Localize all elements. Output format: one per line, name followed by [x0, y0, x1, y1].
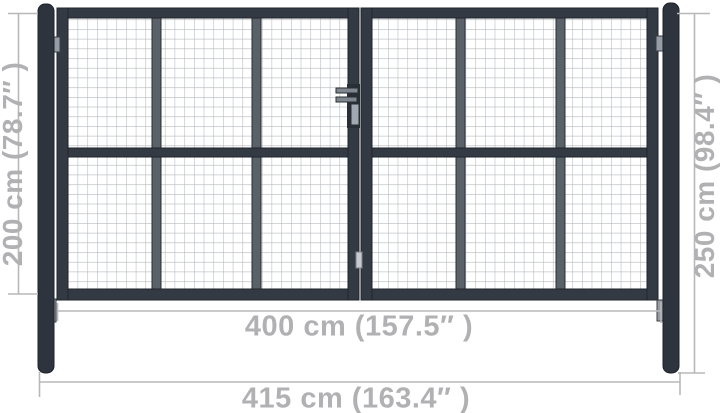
right-post — [663, 3, 679, 373]
right-door-mid-rail — [361, 148, 658, 157]
dimension-label-gate-height: 200 cm (78.7″ ) — [0, 62, 27, 267]
dimension-label-post-height: 250 cm (98.4″ ) — [691, 74, 719, 279]
gate-illustration — [0, 0, 720, 413]
left-door-top-rail — [57, 8, 359, 18]
right-door-bottom-rail — [361, 289, 658, 300]
left-door-bottom-rail — [57, 289, 359, 300]
left-door-mid-rail — [57, 148, 359, 157]
dimension-label-total-width: 415 cm (163.4″ ) — [242, 385, 470, 413]
right-door-right-stile — [647, 8, 658, 300]
dimension-label-gate-width: 400 cm (157.5″ ) — [245, 313, 473, 342]
left-post — [38, 4, 54, 373]
product-image: 200 cm (78.7″ ) 250 cm (98.4″ ) 400 cm (… — [0, 0, 720, 413]
lock-cylinder-icon — [351, 104, 359, 125]
latch-handle-icon — [336, 88, 358, 93]
right-door-top-rail — [361, 8, 658, 18]
drop-bolt-icon — [356, 252, 362, 268]
right-door-left-stile — [361, 8, 372, 300]
latch-handle-lower-icon — [336, 97, 357, 102]
